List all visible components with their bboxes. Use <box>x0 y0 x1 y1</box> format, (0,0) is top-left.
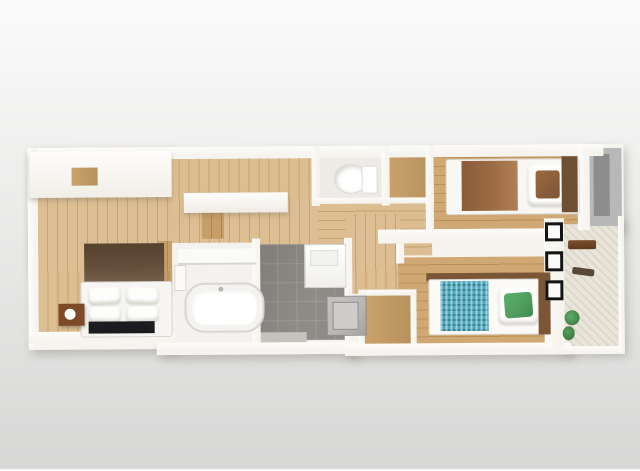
wall-balcony-bottom <box>561 346 625 354</box>
potted-plant <box>565 310 580 325</box>
wall-balcony-right <box>618 216 625 352</box>
toilet-tank <box>362 166 378 194</box>
washing-machine-lid <box>332 302 358 330</box>
bathtub-faucet <box>218 287 223 292</box>
coat-rack <box>568 240 596 249</box>
apartment-plan <box>0 0 640 471</box>
window <box>545 280 563 300</box>
wall-cabinet <box>29 151 171 198</box>
floor-rug <box>89 321 155 333</box>
pillow-green <box>504 292 534 319</box>
window <box>545 251 563 271</box>
pillow-brown <box>536 170 560 198</box>
bath-counter <box>178 248 256 265</box>
bath-cabinet <box>174 265 186 291</box>
wall-bottom-right <box>345 342 571 356</box>
duvet-brown <box>461 161 517 211</box>
cabinet-niche <box>72 168 98 186</box>
potted-plant <box>563 326 575 340</box>
wall-bedroom-divider <box>378 228 548 243</box>
bathtub <box>184 282 264 333</box>
bed-pillow <box>126 287 158 305</box>
bed-pillow <box>88 287 121 306</box>
floorplan-render <box>0 0 640 469</box>
wall-corridor-right <box>396 243 404 263</box>
headboard-north <box>561 156 577 212</box>
wall-under-toilet <box>312 197 434 204</box>
wall-bedroom-north-left <box>425 155 434 231</box>
wall-bath-bottom <box>157 342 357 355</box>
bed-pillow <box>88 306 120 323</box>
floor-lower-closet <box>364 293 410 345</box>
floor-upper-closet <box>387 151 429 203</box>
glass-panel-inner <box>593 154 609 216</box>
wall-lower-closet-top <box>358 289 416 295</box>
table-lamp <box>65 309 76 320</box>
accent-wall <box>84 243 164 284</box>
window <box>545 222 563 241</box>
floor-corridor <box>346 213 401 293</box>
vanity-basin <box>310 250 338 266</box>
kitchen-counter <box>184 192 288 213</box>
duvet-teal <box>440 281 488 331</box>
